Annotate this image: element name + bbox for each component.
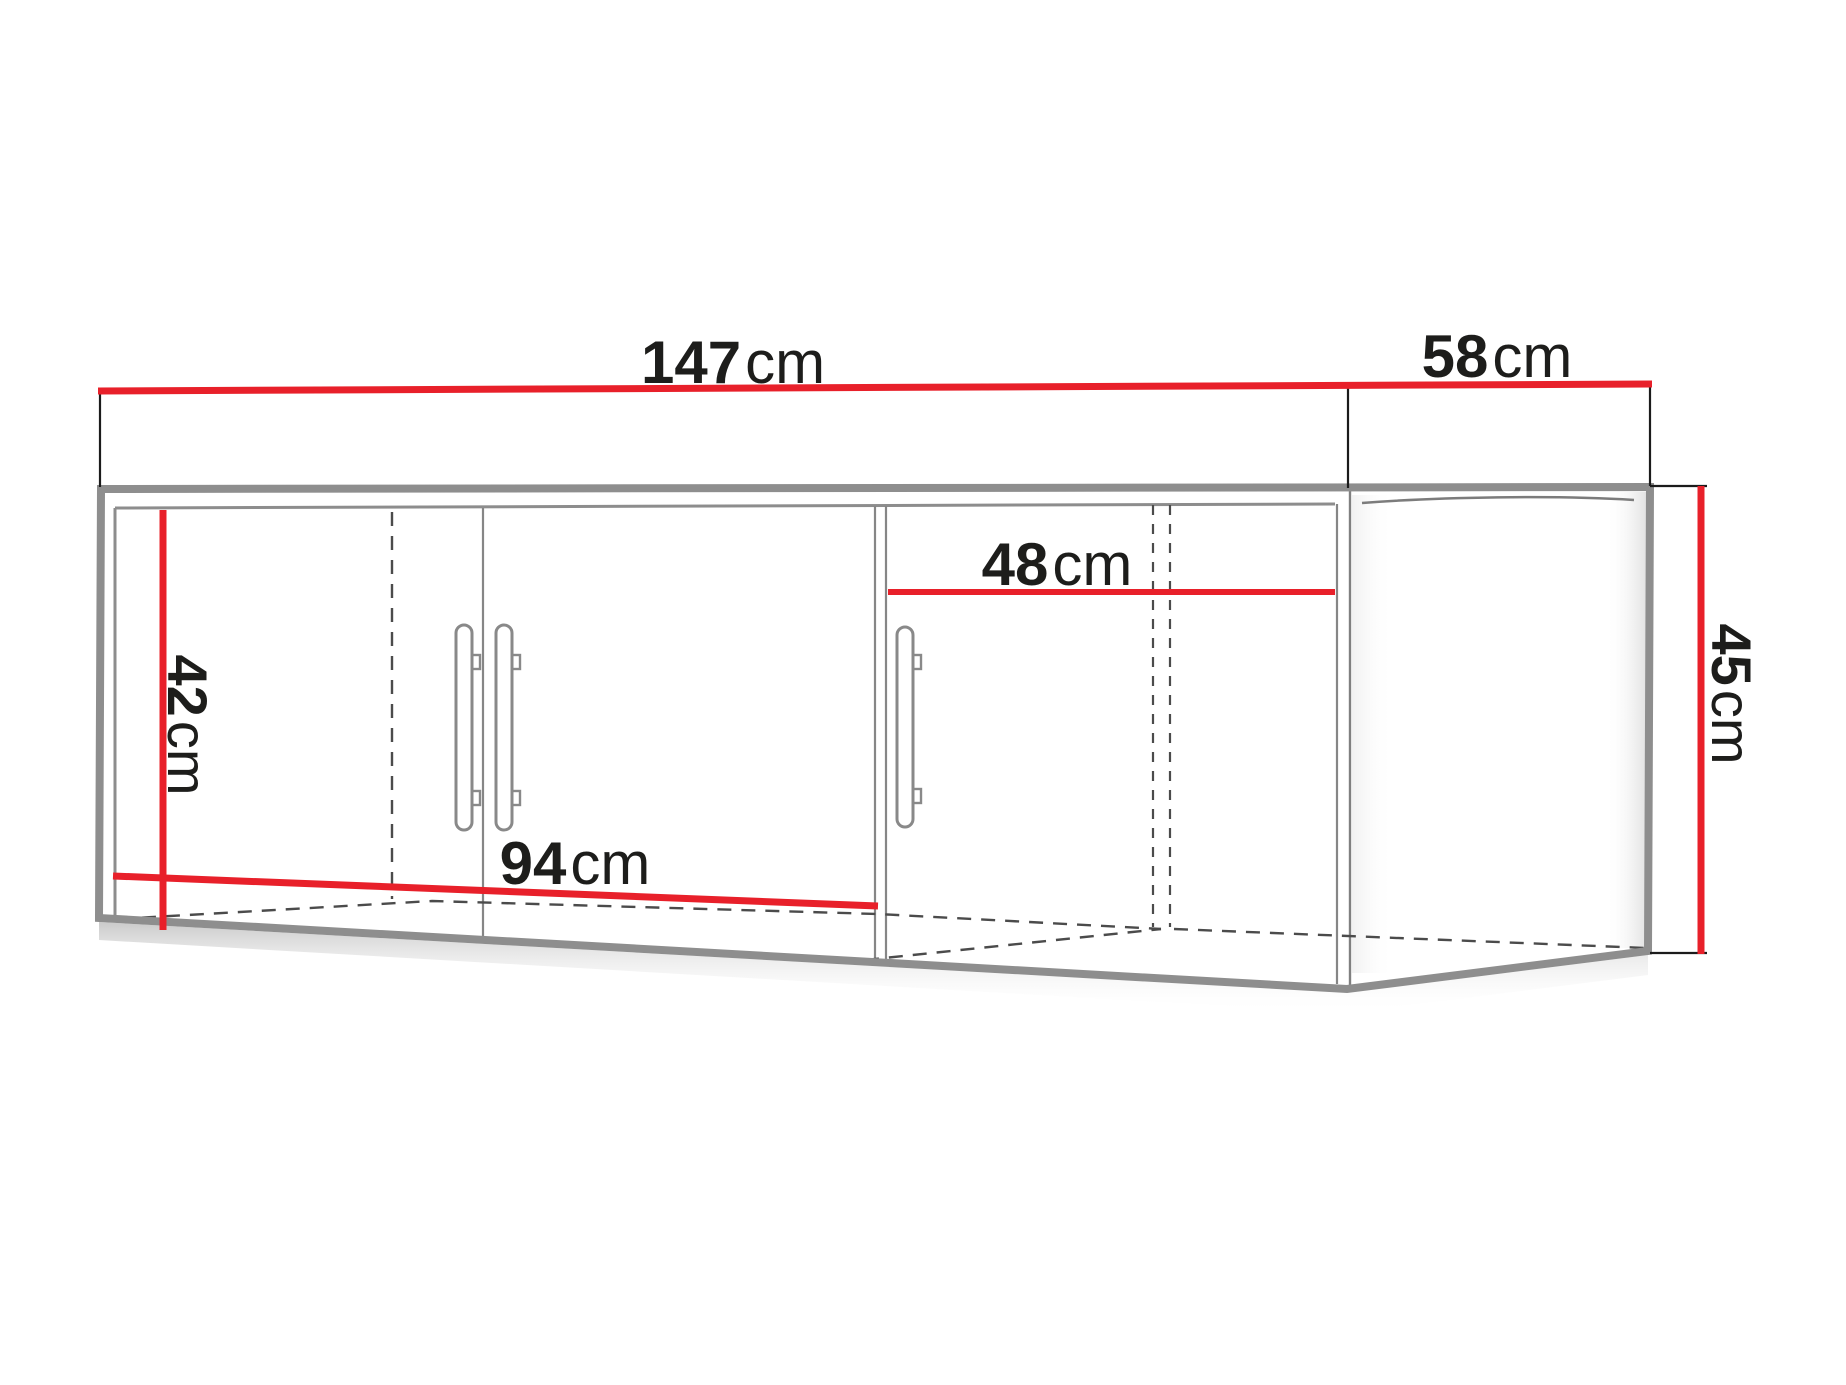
right-edge-shade [1606, 492, 1646, 948]
front-width-label: 147cm [641, 329, 825, 396]
corner-wall-cabinet-diagram: 147cm 58cm 48cm 94cm 42cm 45cm [0, 0, 1846, 1385]
side-depth-label: 58cm [1422, 323, 1573, 390]
corner-joint-shade [1352, 495, 1394, 973]
inner-width-label: 48cm [982, 531, 1133, 598]
side-height-label: 45cm [1700, 624, 1763, 765]
doors-width-label: 94cm [500, 830, 651, 897]
left-height-label: 42cm [156, 655, 219, 796]
front-width-dimension-line [98, 384, 1652, 391]
dimension-drawing-canvas: 147cm 58cm 48cm 94cm 42cm 45cm [0, 0, 1846, 1385]
